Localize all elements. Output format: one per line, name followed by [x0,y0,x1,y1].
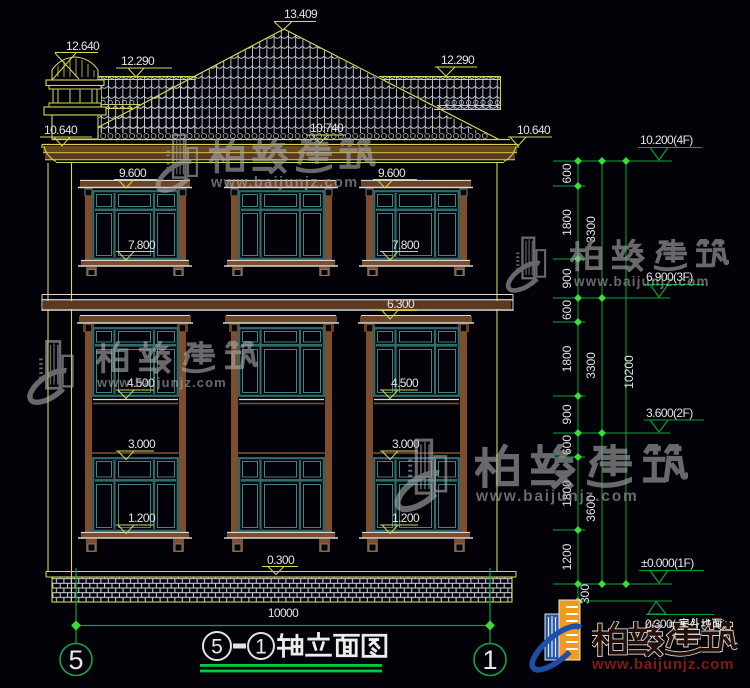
svg-text:12.640: 12.640 [66,39,100,53]
svg-text:900: 900 [560,404,574,424]
svg-text:www.baijunjz.com: www.baijunjz.com [475,488,639,505]
svg-text:4.500: 4.500 [391,376,419,390]
svg-text:9.600: 9.600 [378,166,406,180]
svg-text:10200: 10200 [622,355,636,389]
svg-text:±0.000(1F): ±0.000(1F) [641,556,694,570]
svg-text:10.640: 10.640 [517,123,551,137]
svg-text:www.baijunjz.com: www.baijunjz.com [210,175,359,191]
svg-text:www.baijunjz.com: www.baijunjz.com [96,375,227,390]
svg-text:1200: 1200 [560,543,574,570]
svg-text:3.600(2F): 3.600(2F) [646,406,693,420]
svg-text:600: 600 [560,163,574,183]
svg-text:12.290: 12.290 [121,54,155,68]
svg-text:900: 900 [560,268,574,288]
svg-text:6.300: 6.300 [387,297,415,311]
svg-text:10.200(4F): 10.200(4F) [640,133,693,147]
svg-text:0.300(: 0.300( [645,617,676,631]
svg-text:13.409: 13.409 [284,7,318,21]
svg-text:3300: 3300 [584,352,598,379]
svg-text:12.290: 12.290 [441,53,475,67]
svg-text:www.baijunjz.com: www.baijunjz.com [591,656,734,673]
svg-text:9.600: 9.600 [119,166,147,180]
svg-text:5: 5 [68,645,83,675]
svg-text:1: 1 [482,645,497,675]
svg-text:1.200: 1.200 [392,511,420,525]
svg-text:10000: 10000 [268,606,299,620]
svg-text:1: 1 [255,636,267,659]
svg-text:600: 600 [560,300,574,320]
svg-text:5: 5 [211,636,223,659]
svg-text:1.200: 1.200 [128,511,156,525]
svg-text:3300: 3300 [584,216,598,243]
svg-text:1800: 1800 [560,209,574,236]
svg-text:0.300: 0.300 [267,553,295,567]
svg-text:3.000: 3.000 [128,437,156,451]
svg-text:7.800: 7.800 [128,238,156,252]
svg-text:1800: 1800 [560,345,574,372]
svg-text:10.740: 10.740 [310,121,344,135]
svg-text:www.baijunjz.com: www.baijunjz.com [573,274,710,289]
svg-text:7.800: 7.800 [392,238,420,252]
svg-text:10.640: 10.640 [44,123,78,137]
